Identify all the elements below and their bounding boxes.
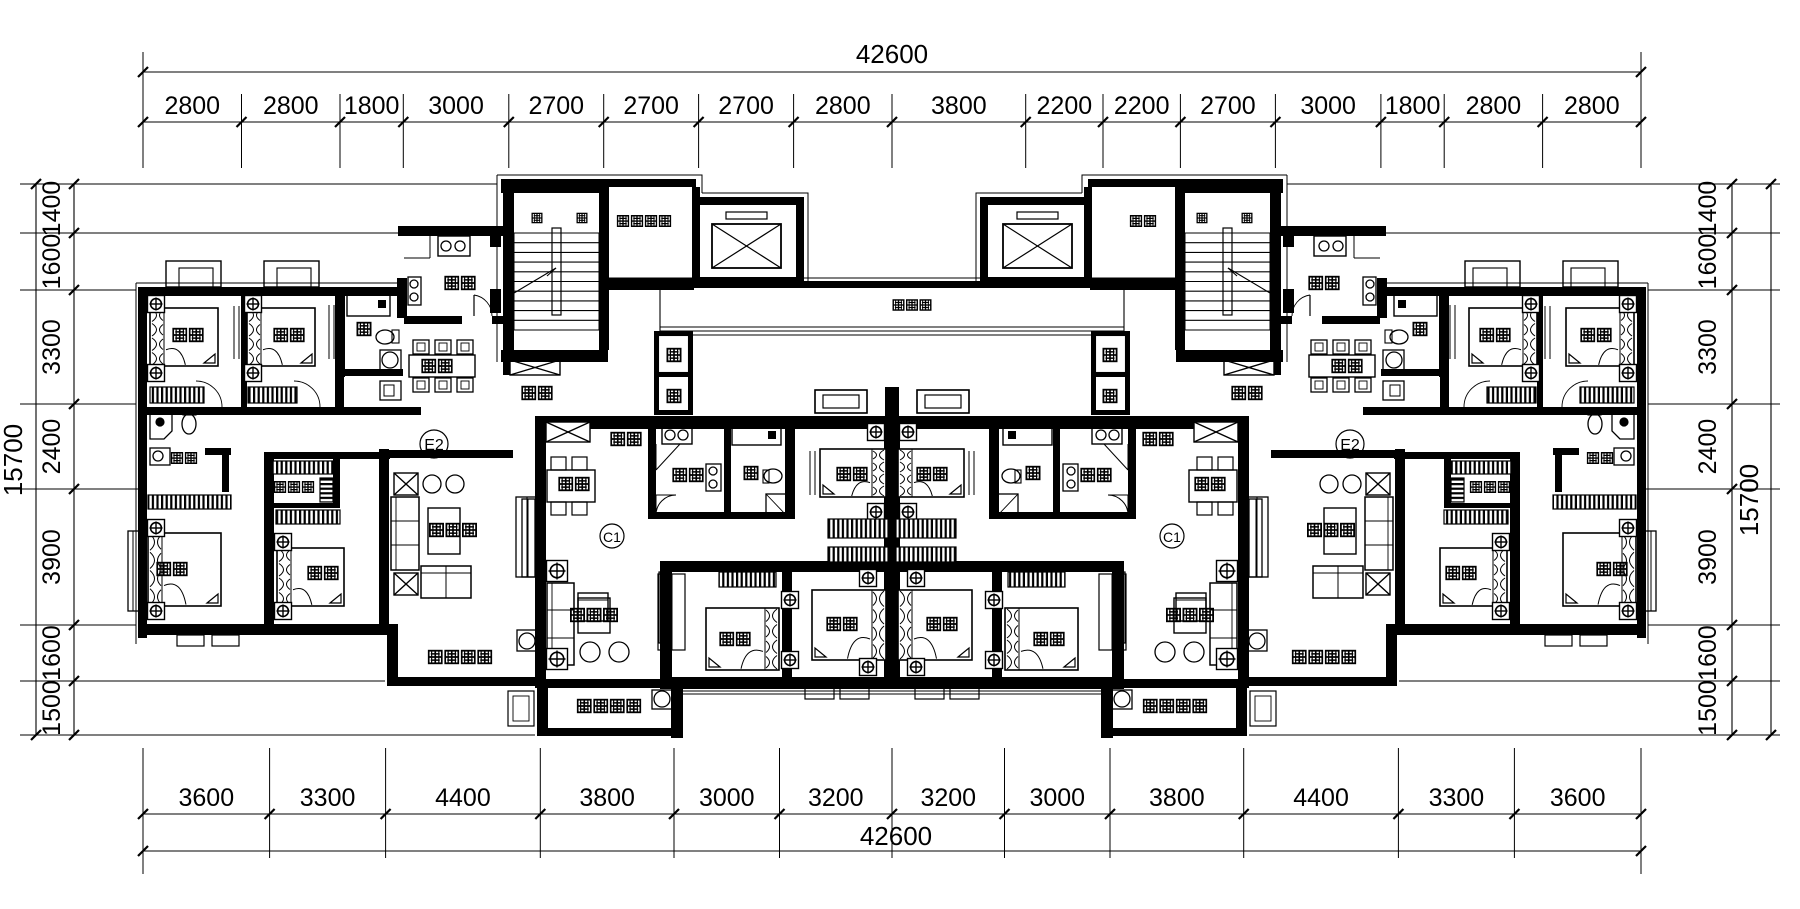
svg-text:4400: 4400 <box>1293 784 1349 812</box>
svg-text:2800: 2800 <box>1564 92 1620 120</box>
svg-text:C1: C1 <box>1163 529 1181 545</box>
svg-text:15700: 15700 <box>1734 464 1764 536</box>
svg-text:3900: 3900 <box>38 529 66 585</box>
svg-text:3000: 3000 <box>1029 784 1085 812</box>
svg-text:C1: C1 <box>603 529 621 545</box>
svg-text:42600: 42600 <box>860 821 932 851</box>
svg-text:3000: 3000 <box>699 784 755 812</box>
svg-text:2400: 2400 <box>1694 419 1722 475</box>
svg-text:3000: 3000 <box>428 92 484 120</box>
svg-text:3800: 3800 <box>931 92 987 120</box>
svg-text:2700: 2700 <box>623 92 679 120</box>
svg-text:3800: 3800 <box>1149 784 1205 812</box>
svg-text:1600: 1600 <box>38 234 66 290</box>
svg-text:1800: 1800 <box>1385 92 1441 120</box>
svg-text:42600: 42600 <box>856 39 928 69</box>
svg-text:1600: 1600 <box>1694 234 1722 290</box>
svg-text:3300: 3300 <box>1429 784 1485 812</box>
svg-text:3200: 3200 <box>920 784 976 812</box>
svg-text:3000: 3000 <box>1300 92 1356 120</box>
svg-text:1600: 1600 <box>1694 625 1722 681</box>
svg-text:3300: 3300 <box>38 319 66 375</box>
svg-text:2200: 2200 <box>1037 92 1093 120</box>
svg-text:3900: 3900 <box>1694 529 1722 585</box>
svg-text:3200: 3200 <box>808 784 864 812</box>
svg-text:3300: 3300 <box>300 784 356 812</box>
svg-text:1500: 1500 <box>38 680 66 736</box>
svg-text:E2: E2 <box>424 437 444 454</box>
svg-text:1500: 1500 <box>1694 680 1722 736</box>
svg-text:2700: 2700 <box>1200 92 1256 120</box>
svg-text:3300: 3300 <box>1694 319 1722 375</box>
svg-text:2800: 2800 <box>263 92 319 120</box>
svg-text:2800: 2800 <box>1466 92 1522 120</box>
svg-text:2800: 2800 <box>164 92 220 120</box>
svg-text:1600: 1600 <box>38 625 66 681</box>
svg-text:1800: 1800 <box>344 92 400 120</box>
svg-text:2800: 2800 <box>815 92 871 120</box>
svg-text:2700: 2700 <box>528 92 584 120</box>
svg-text:E2: E2 <box>1340 437 1360 454</box>
svg-text:3800: 3800 <box>579 784 635 812</box>
svg-text:15700: 15700 <box>0 424 28 496</box>
svg-text:2200: 2200 <box>1114 92 1170 120</box>
svg-text:3600: 3600 <box>1550 784 1606 812</box>
svg-text:2700: 2700 <box>718 92 774 120</box>
svg-text:2400: 2400 <box>38 419 66 475</box>
svg-text:1400: 1400 <box>38 181 66 237</box>
svg-text:4400: 4400 <box>435 784 491 812</box>
svg-text:1400: 1400 <box>1694 181 1722 237</box>
svg-text:3600: 3600 <box>178 784 234 812</box>
